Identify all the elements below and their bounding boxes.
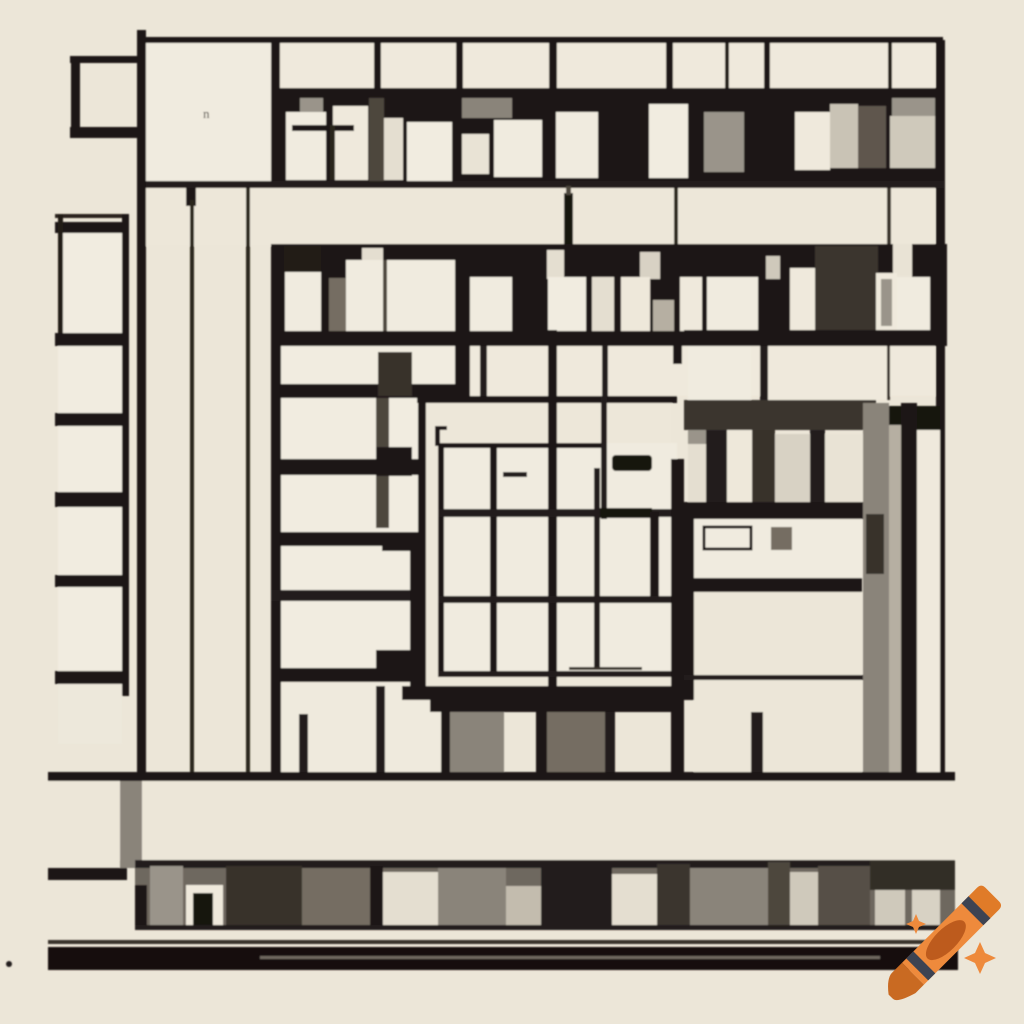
svg-text:n: n — [203, 106, 210, 121]
